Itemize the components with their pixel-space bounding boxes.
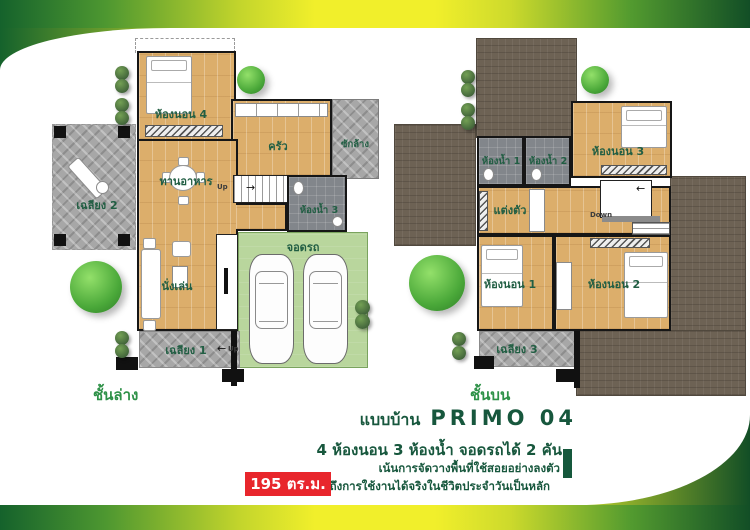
shrub xyxy=(355,314,370,329)
tree xyxy=(581,66,609,94)
cushion xyxy=(143,320,156,331)
stairs-up-label: Up xyxy=(217,183,228,191)
column xyxy=(116,357,138,370)
entry-arrow-icon: ← xyxy=(217,343,226,354)
column xyxy=(54,126,66,138)
dining-label: ทานอาหาร xyxy=(159,172,212,190)
column xyxy=(118,234,130,246)
sofa xyxy=(141,249,161,319)
closet xyxy=(556,262,572,310)
shrub xyxy=(452,346,466,360)
shrub xyxy=(461,70,475,84)
wardrobe xyxy=(145,125,223,137)
porch1-label: เฉลียง 1 xyxy=(165,341,206,359)
title-prefix: แบบบ้าน xyxy=(360,410,421,429)
specs-line: 4 ห้องนอน 3 ห้องน้ำ จอดรถได้ 2 คัน xyxy=(316,438,562,462)
brochure-page: → Up ← Up ห้องนอน 4 ครัว ซักล้าง ทานอาหา… xyxy=(0,0,750,530)
shrub xyxy=(452,332,466,346)
tree xyxy=(70,261,122,313)
shrub xyxy=(115,331,129,345)
shrub xyxy=(115,98,129,112)
bedroom1-label: ห้องนอน 1 xyxy=(484,275,536,293)
shrub xyxy=(461,116,475,130)
toilet xyxy=(531,168,542,181)
down-arrow-icon: ← xyxy=(636,183,645,194)
wardrobe xyxy=(479,191,488,231)
bath1-label: ห้องน้ำ 1 xyxy=(482,154,520,169)
car xyxy=(303,254,348,364)
car xyxy=(249,254,294,364)
kitchen-label: ครัว xyxy=(268,137,287,155)
bedroom2-label: ห้องนอน 2 xyxy=(588,275,640,293)
tree xyxy=(237,66,265,94)
stairs-down-label: Down xyxy=(590,211,612,219)
shrub xyxy=(461,83,475,97)
kitchen-counter xyxy=(235,103,328,117)
porch-up-label: Up xyxy=(228,345,239,353)
armchair xyxy=(172,241,191,257)
porch2-label: เฉลียง 2 xyxy=(76,196,117,214)
column xyxy=(556,369,576,382)
tree xyxy=(409,255,465,311)
top-gradient-band xyxy=(0,0,750,28)
tagline-1: เน้นการจัดวางพื้นที่ใช้สอยอย่างลงตัว xyxy=(379,460,560,478)
parking-label: จอดรถ xyxy=(287,238,320,256)
tagline-2: คำนึงถึงการใช้งานได้จริงในชีวิตประจำวันเ… xyxy=(302,478,550,496)
living-label: นั่งเล่น xyxy=(162,277,193,295)
laundry-label: ซักล้าง xyxy=(341,137,369,152)
dressing-label: แต่งตัว xyxy=(494,201,527,219)
bedroom3-label: ห้องนอน 3 xyxy=(592,142,644,160)
up-arrow-icon: → xyxy=(246,182,255,193)
staircase-upper xyxy=(632,222,670,235)
shrub xyxy=(355,300,370,315)
column xyxy=(474,356,494,369)
bath2-label: ห้องน้ำ 2 xyxy=(529,154,567,169)
closet xyxy=(529,189,545,232)
porch3-label: เฉลียง 3 xyxy=(496,340,537,358)
shrub xyxy=(461,103,475,117)
toilet xyxy=(483,168,494,181)
chair xyxy=(178,196,189,205)
roof-section xyxy=(576,330,746,396)
house-title: แบบบ้านPRIMO 04 xyxy=(360,406,577,433)
shrub xyxy=(115,66,129,80)
column xyxy=(222,369,244,382)
wardrobe xyxy=(590,238,650,248)
wardrobe xyxy=(601,165,667,175)
corner-curve xyxy=(578,415,750,505)
roof-section xyxy=(670,176,746,334)
upper-floor-label: ชั้นบน xyxy=(470,383,510,407)
bottom-gradient-band xyxy=(0,505,750,530)
hallway xyxy=(236,203,287,231)
closet-door xyxy=(224,268,228,294)
model-name: PRIMO 04 xyxy=(430,406,577,430)
ground-floor-label: ชั้นล่าง xyxy=(93,383,138,407)
bath3-label: ห้องน้ำ 3 xyxy=(300,203,338,218)
bottom-right-corner-decoration xyxy=(578,415,750,505)
shrub xyxy=(115,111,129,125)
side-table xyxy=(96,181,109,194)
staircase-ground xyxy=(233,175,288,203)
roof-section xyxy=(394,124,476,246)
area-badge: 195 ตร.ม. xyxy=(245,472,331,496)
column xyxy=(118,126,130,138)
shrub xyxy=(115,344,129,358)
shrub xyxy=(115,79,129,93)
cushion xyxy=(143,238,156,249)
green-accent-bar xyxy=(563,449,572,478)
toilet xyxy=(293,181,304,195)
bedroom4-label: ห้องนอน 4 xyxy=(155,105,207,123)
roof-section xyxy=(476,38,577,138)
column xyxy=(54,234,66,246)
